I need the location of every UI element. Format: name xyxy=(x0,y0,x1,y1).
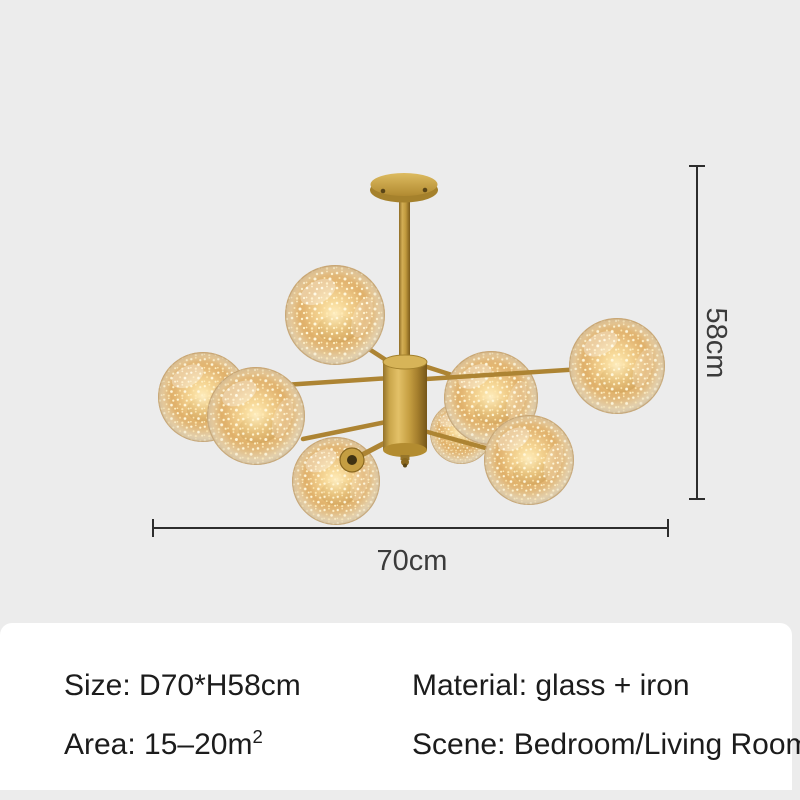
down-rod xyxy=(399,194,410,366)
width-dimension-line xyxy=(153,519,668,537)
product-page: 58cm 70cm Size: D70*H58cm Material: glas… xyxy=(0,0,800,800)
spec-scene: Scene: Bedroom/Living Room xyxy=(412,728,800,762)
canopy-screw-right xyxy=(423,188,428,193)
spec-panel: Size: D70*H58cm Material: glass + iron A… xyxy=(0,623,792,790)
spec-material: Material: glass + iron xyxy=(412,669,690,703)
central-hub xyxy=(383,355,427,468)
spec-size: Size: D70*H58cm xyxy=(64,669,301,703)
spec-area: Area: 15–20m2 xyxy=(64,728,263,762)
glass-globe-top xyxy=(285,265,385,365)
arm-left-lower xyxy=(303,422,386,439)
globe-socket-hole xyxy=(347,455,357,465)
width-dimension-label: 70cm xyxy=(377,545,448,577)
canopy-screw-left xyxy=(381,189,386,194)
ceiling-canopy xyxy=(370,173,438,203)
spec-area-text: Area: 15–20m xyxy=(64,728,252,761)
height-dimension-label: 58cm xyxy=(700,308,732,379)
chandelier xyxy=(158,173,665,525)
chandelier-product-photo: 58cm 70cm xyxy=(0,0,800,623)
glass-globe-left xyxy=(207,367,305,465)
glass-globe-bottom-right xyxy=(484,415,574,505)
glass-globe-far-right xyxy=(569,318,665,414)
spec-area-superscript: 2 xyxy=(252,726,262,747)
